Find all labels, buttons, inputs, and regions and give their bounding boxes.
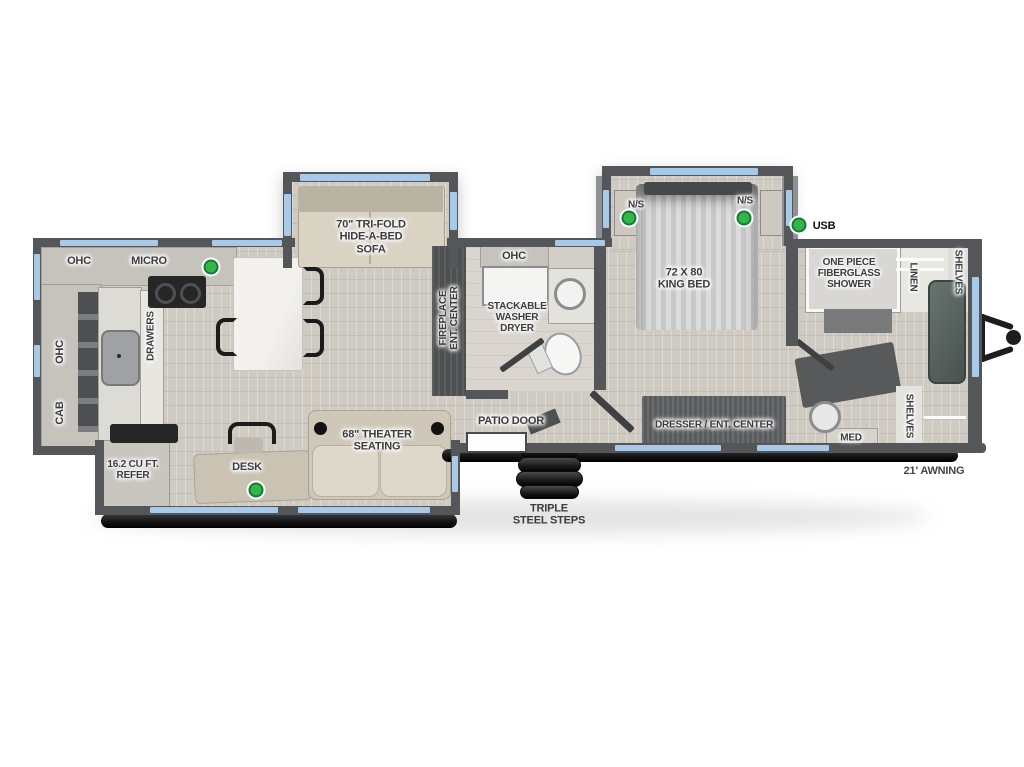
label-shelves-bottom: SHELVES: [903, 394, 914, 439]
kitchen-sink-icon: [101, 330, 140, 386]
vanity-sink-icon: [809, 401, 841, 433]
cupholder-right-icon: [431, 422, 444, 435]
bottom-window-2: [757, 445, 829, 451]
bath-sink-icon: [554, 278, 586, 310]
label-awning: 21' AWNING: [904, 465, 965, 477]
sofa-back-cushion: [298, 186, 443, 212]
label-cab: CAB: [54, 401, 66, 424]
label-ohc-side: OHC: [54, 340, 66, 364]
wardrobe-unit: [928, 280, 966, 384]
bedroom-slide-window-right: [786, 190, 792, 226]
label-shower: ONE PIECE FIBERGLASS SHOWER: [818, 257, 880, 291]
label-med: MED: [840, 432, 862, 443]
linen-shelf-line-2: [896, 268, 944, 271]
label-sofa: 70" TRI-FOLD HIDE-A-BED SOFA: [336, 219, 405, 256]
door-slide-window-3: [452, 456, 458, 492]
label-micro: MICRO: [131, 255, 167, 267]
power-indicator-ns-right-icon: [737, 211, 752, 226]
power-indicator-ns-left-icon: [622, 211, 637, 226]
label-desk: DESK: [232, 461, 262, 473]
label-ohc-rear: OHC: [67, 255, 91, 267]
refer-top-panel: [110, 424, 178, 443]
bedroom-slide-window-top: [650, 168, 758, 175]
island-chair-3: [216, 318, 237, 356]
patio-door: [466, 432, 527, 453]
label-ns-right: N/S: [737, 195, 753, 206]
cupholder-left-icon: [314, 422, 327, 435]
top-wall-front: [786, 239, 982, 248]
hitch-ball-icon: [1006, 330, 1021, 345]
desk-chair-seat: [234, 438, 263, 453]
island-chair-2: [303, 319, 324, 357]
entry-step-4: [520, 485, 579, 499]
power-indicator-desk-icon: [249, 483, 264, 498]
bedroom-bath-wall: [786, 246, 798, 346]
rv-floorplan-canvas: OHC MICRO OHC CAB DRAWERS 16.2 CU FT. RE…: [0, 0, 1024, 767]
island-chair-1: [303, 267, 324, 305]
label-patio-door: PATIO DOOR: [478, 415, 544, 427]
linen-shelf-line-1: [896, 258, 944, 261]
washer-dryer-icon: [482, 266, 549, 306]
label-drawers: DRAWERS: [145, 311, 156, 361]
cabinet-drawer-faces: [78, 292, 98, 432]
bottom-shelf-line: [924, 416, 966, 419]
kitchen-island: [233, 257, 303, 371]
label-shelves-top: SHELVES: [952, 250, 963, 295]
shower-base: [824, 309, 892, 333]
rear-window-top-1: [60, 240, 158, 246]
kitchen-faucet-icon: [117, 354, 121, 358]
door-slide-window-1: [150, 507, 278, 513]
label-theater-seating: 68" THEATER SEATING: [342, 429, 411, 454]
sofa-slide-window-right: [450, 192, 457, 230]
rear-window-side-2: [34, 345, 40, 377]
rear-window-side-1: [34, 254, 40, 300]
label-steps: TRIPLE STEEL STEPS: [513, 503, 585, 528]
burner-left-icon: [155, 283, 176, 304]
label-king-bed: 72 X 80 KING BED: [658, 267, 710, 292]
label-linen: LINEN: [907, 262, 918, 291]
bottom-wall-front: [458, 443, 986, 453]
label-dresser: DRESSER / ENT. CENTER: [655, 419, 773, 430]
bath-wall-bottom: [466, 390, 508, 399]
door-slide-window-2: [298, 507, 430, 513]
hitch-arm-bottom: [980, 346, 1014, 363]
label-refer: 16.2 CU FT. REFER: [107, 459, 158, 481]
bath-window-top: [555, 240, 605, 246]
front-window: [972, 277, 979, 377]
label-washer-dryer: STACKABLE WASHER DRYER: [487, 301, 546, 335]
sofa-slide-window-left: [284, 194, 291, 236]
bottom-wall-rear: [33, 446, 97, 455]
door-slide-awning-bar: [101, 514, 457, 528]
bottom-window-1: [615, 445, 721, 451]
nightstand-right: [760, 190, 784, 236]
label-fireplace: FIREPLACE ENT. CENTER: [438, 286, 460, 349]
label-ns-left: N/S: [628, 199, 644, 210]
rear-window-top-2: [212, 240, 282, 246]
hitch-arm-top: [980, 314, 1014, 331]
usb-indicator-icon: [792, 218, 807, 233]
bed-headboard: [644, 182, 752, 195]
power-indicator-kitchen-icon: [204, 260, 219, 275]
label-ohc-bath: OHC: [502, 250, 526, 262]
burner-right-icon: [180, 283, 201, 304]
label-usb: USB: [813, 220, 836, 232]
bedroom-slide-window-left: [603, 190, 609, 228]
sofa-slide-window-top: [300, 174, 430, 181]
bath-wall-right: [594, 246, 606, 390]
